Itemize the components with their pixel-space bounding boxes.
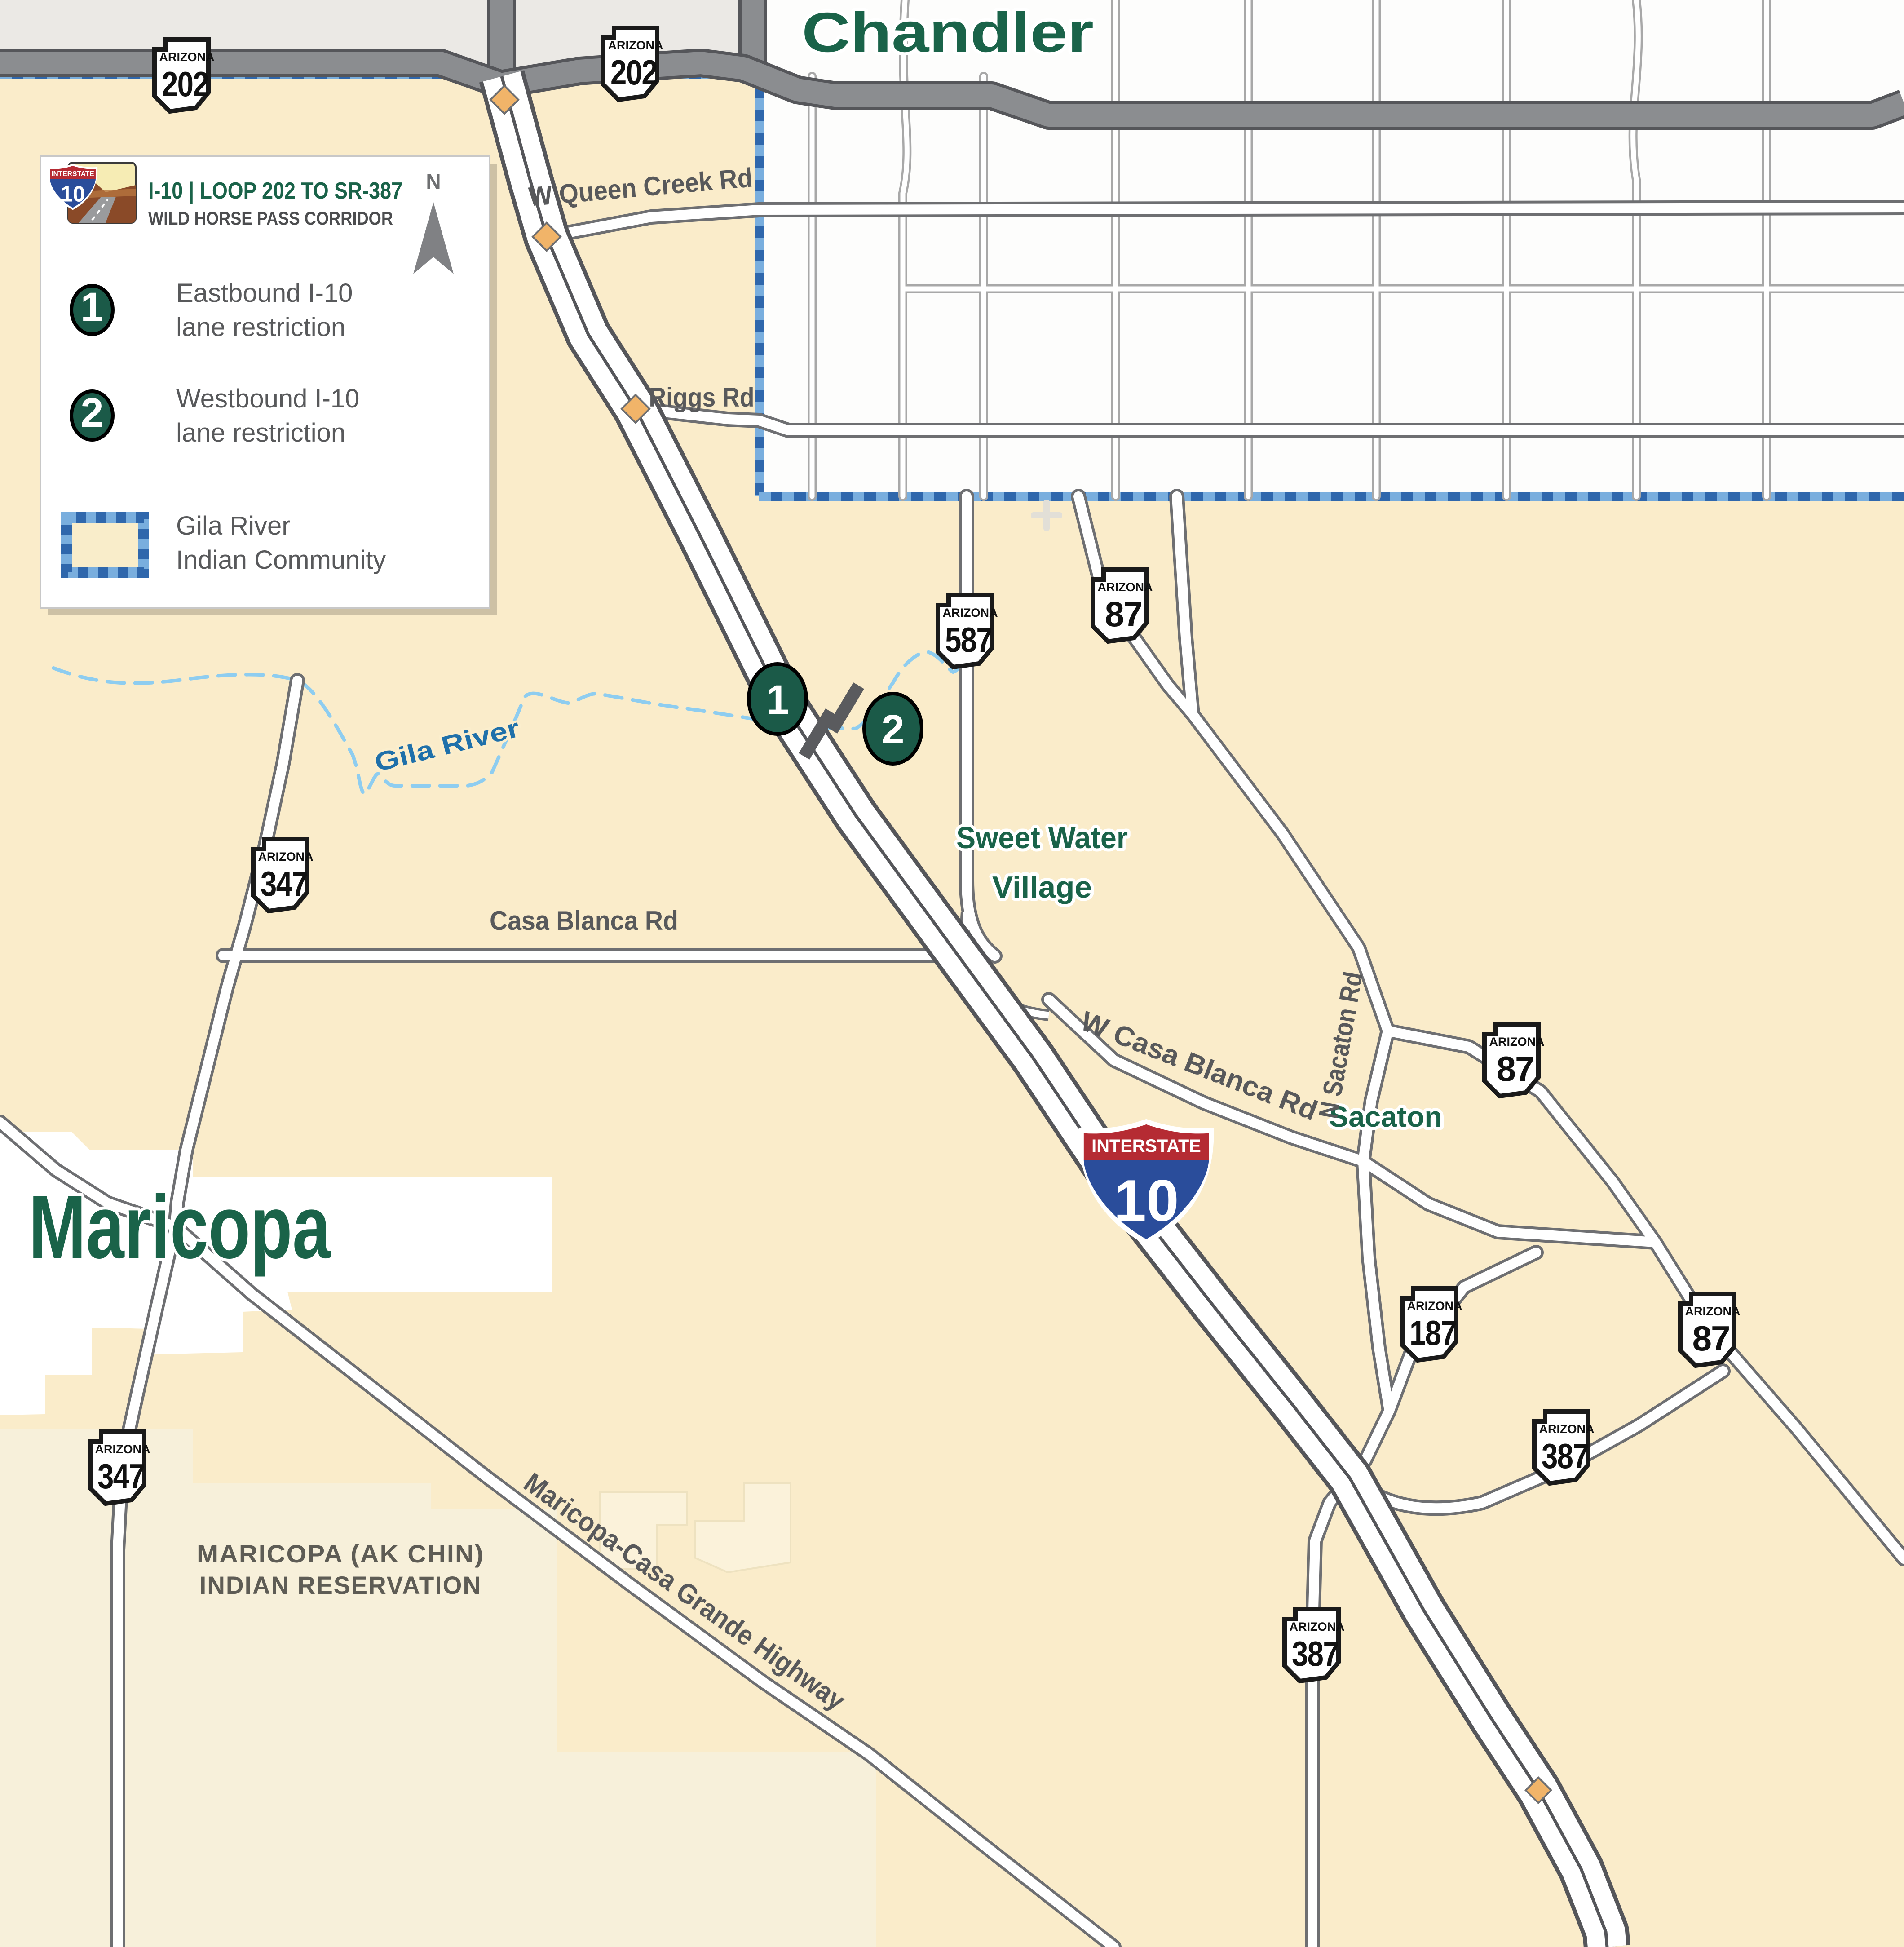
svg-text:202: 202 — [162, 64, 208, 104]
legend-item-1-line2: lane restriction — [176, 313, 345, 342]
interstate-route-number: 10 — [1113, 1168, 1179, 1233]
svg-text:587: 587 — [945, 620, 992, 659]
svg-text:87: 87 — [1692, 1319, 1730, 1358]
boundary-swatch-icon — [66, 518, 144, 572]
legend-item-3-line1: Gila River — [176, 511, 291, 540]
corridor-map: Chandler Maricopa Sweet Water Village Sa… — [0, 0, 1904, 1947]
svg-text:347: 347 — [97, 1456, 144, 1496]
svg-text:87: 87 — [1105, 594, 1142, 634]
svg-text:ARIZONA: ARIZONA — [1098, 580, 1153, 594]
legend-item-2-line2: lane restriction — [176, 418, 345, 447]
label-reservation-1: MARICOPA (AK CHIN) — [197, 1540, 484, 1568]
svg-text:87: 87 — [1497, 1049, 1534, 1089]
shield-387-south: ARIZONA387 — [1285, 1609, 1345, 1681]
svg-text:187: 187 — [1409, 1313, 1456, 1353]
svg-text:ARIZONA: ARIZONA — [95, 1443, 150, 1456]
label-chandler: Chandler — [802, 1, 1094, 64]
shield-187: ARIZONA187 — [1402, 1288, 1462, 1360]
label-sweet-water-2: Village — [992, 870, 1092, 904]
shield-347-south: ARIZONA347 — [90, 1432, 150, 1504]
legend-item-2-line1: Westbound I-10 — [176, 384, 359, 413]
shield-387-east: ARIZONA387 — [1534, 1412, 1595, 1483]
shield-202-west: ARIZONA202 — [155, 40, 215, 111]
marker-2: 2 — [864, 694, 922, 764]
svg-text:202: 202 — [610, 53, 657, 92]
north-label: N — [426, 170, 441, 193]
marker-1-label: 1 — [766, 677, 789, 723]
shield-347-north: ARIZONA347 — [253, 839, 314, 911]
marker-1: 1 — [749, 664, 806, 734]
label-sweet-water-1: Sweet Water — [956, 821, 1128, 855]
legend-item-3-line2: Indian Community — [176, 545, 386, 575]
legend-marker-2: 2 — [80, 390, 103, 436]
legend-title: I-10 | LOOP 202 TO SR-387 — [148, 178, 402, 204]
legend-icon-banner: INTERSTATE — [51, 170, 94, 178]
label-riggs-rd: Riggs Rd — [649, 382, 755, 412]
svg-text:ARIZONA: ARIZONA — [159, 50, 215, 64]
svg-text:ARIZONA: ARIZONA — [943, 606, 998, 619]
label-maricopa: Maricopa — [29, 1177, 331, 1277]
legend-panel: INTERSTATE 10 I-10 | LOOP 202 TO SR-387 … — [40, 156, 497, 615]
interstate-banner: INTERSTATE — [1091, 1136, 1201, 1156]
shield-587: ARIZONA587 — [938, 595, 998, 667]
legend-item-1-line1: Eastbound I-10 — [176, 279, 353, 308]
svg-text:ARIZONA: ARIZONA — [1685, 1305, 1741, 1318]
svg-text:ARIZONA: ARIZONA — [1407, 1299, 1462, 1313]
svg-text:ARIZONA: ARIZONA — [258, 850, 314, 863]
marker-2-label: 2 — [881, 707, 904, 752]
shield-202-east: ARIZONA202 — [603, 28, 663, 100]
label-reservation-2: INDIAN RESERVATION — [199, 1571, 482, 1599]
legend-marker-1: 1 — [80, 284, 103, 330]
svg-text:387: 387 — [1292, 1634, 1339, 1673]
svg-text:387: 387 — [1542, 1436, 1588, 1476]
svg-text:ARIZONA: ARIZONA — [1290, 1620, 1345, 1633]
label-sacaton: Sacaton — [1329, 1101, 1442, 1133]
label-casa-blanca-rd: Casa Blanca Rd — [490, 906, 678, 936]
legend-subtitle: WILD HORSE PASS CORRIDOR — [148, 208, 393, 229]
svg-text:ARIZONA: ARIZONA — [1539, 1422, 1595, 1436]
svg-text:ARIZONA: ARIZONA — [1489, 1035, 1545, 1049]
svg-text:347: 347 — [261, 864, 307, 903]
svg-text:ARIZONA: ARIZONA — [608, 39, 663, 52]
legend-icon-route: 10 — [61, 182, 85, 207]
